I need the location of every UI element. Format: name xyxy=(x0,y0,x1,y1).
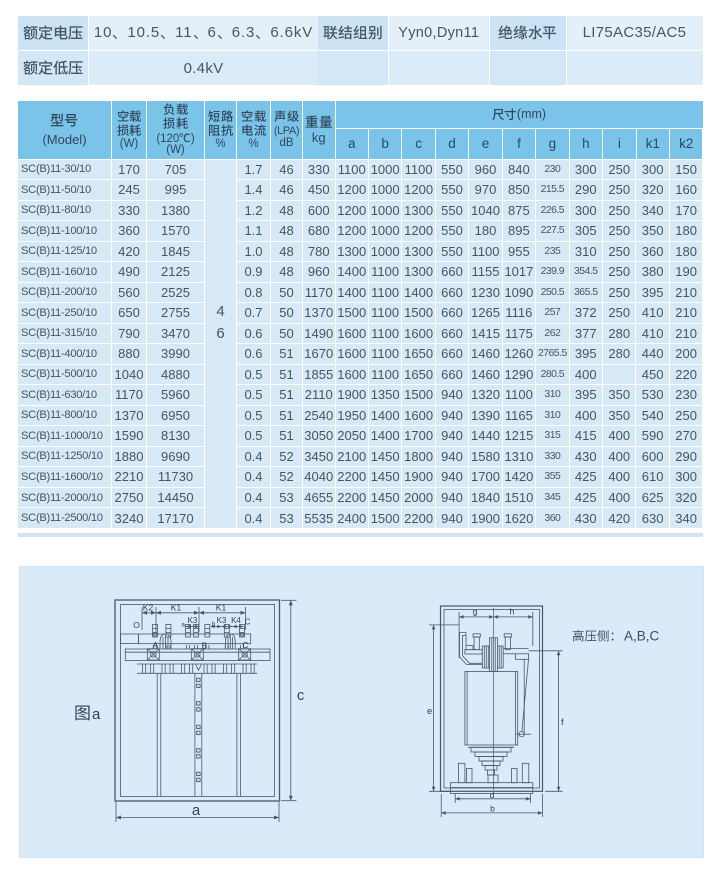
svg-text:K2: K2 xyxy=(143,603,154,613)
svg-text:a: a xyxy=(181,622,185,629)
svg-text:K4: K4 xyxy=(231,616,241,625)
svg-text:a: a xyxy=(92,706,101,723)
svg-text:b: b xyxy=(212,621,216,628)
svg-text:A,B,C: A,B,C xyxy=(624,629,660,644)
svg-text:h: h xyxy=(510,607,515,617)
svg-text:g: g xyxy=(473,607,478,617)
svg-text:e: e xyxy=(427,706,432,717)
svg-text:c: c xyxy=(297,688,304,704)
svg-text:b: b xyxy=(490,804,495,814)
svg-text:C: C xyxy=(245,618,251,627)
svg-text:O: O xyxy=(133,620,140,630)
svg-text:a: a xyxy=(192,802,201,819)
svg-text:K1: K1 xyxy=(171,603,182,613)
svg-text:K3: K3 xyxy=(217,616,227,625)
svg-text:K3: K3 xyxy=(188,616,198,625)
svg-text:f: f xyxy=(561,717,564,728)
svg-text:d: d xyxy=(490,790,495,800)
svg-text:K1: K1 xyxy=(216,603,227,613)
